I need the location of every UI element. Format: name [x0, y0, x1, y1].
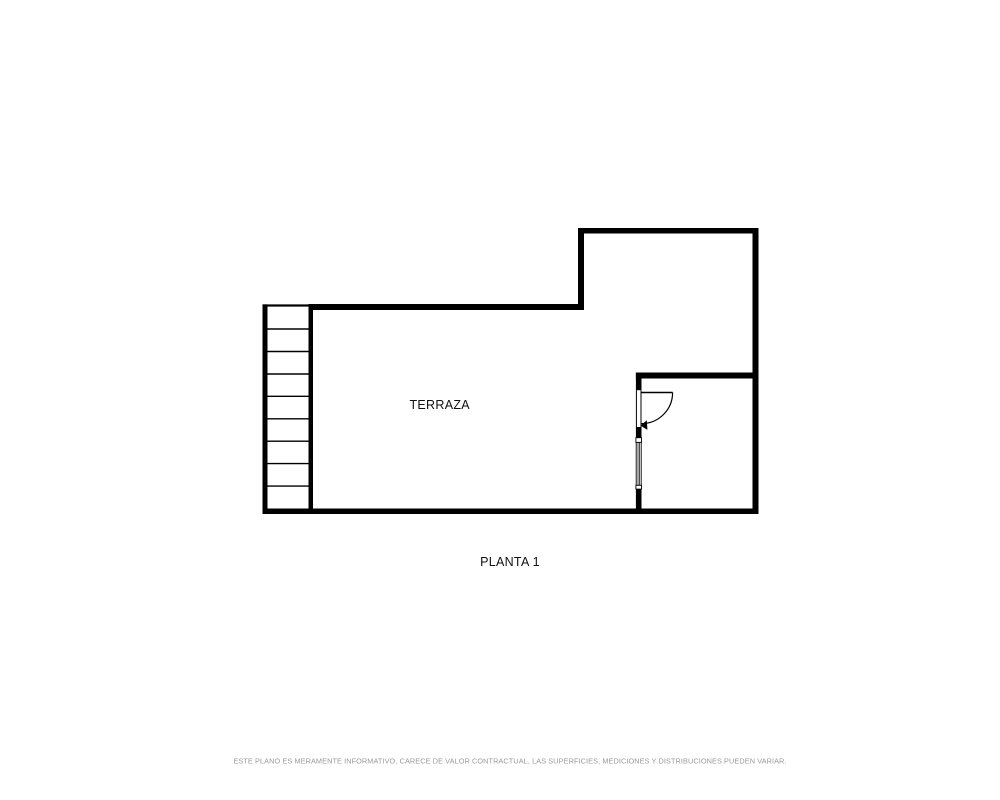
svg-text:PLANTA 1: PLANTA 1: [480, 555, 540, 569]
svg-text:TERRAZA: TERRAZA: [409, 398, 470, 412]
svg-text:ESTE PLANO ES MERAMENTE INFORM: ESTE PLANO ES MERAMENTE INFORMATIVO, CAR…: [233, 757, 786, 766]
